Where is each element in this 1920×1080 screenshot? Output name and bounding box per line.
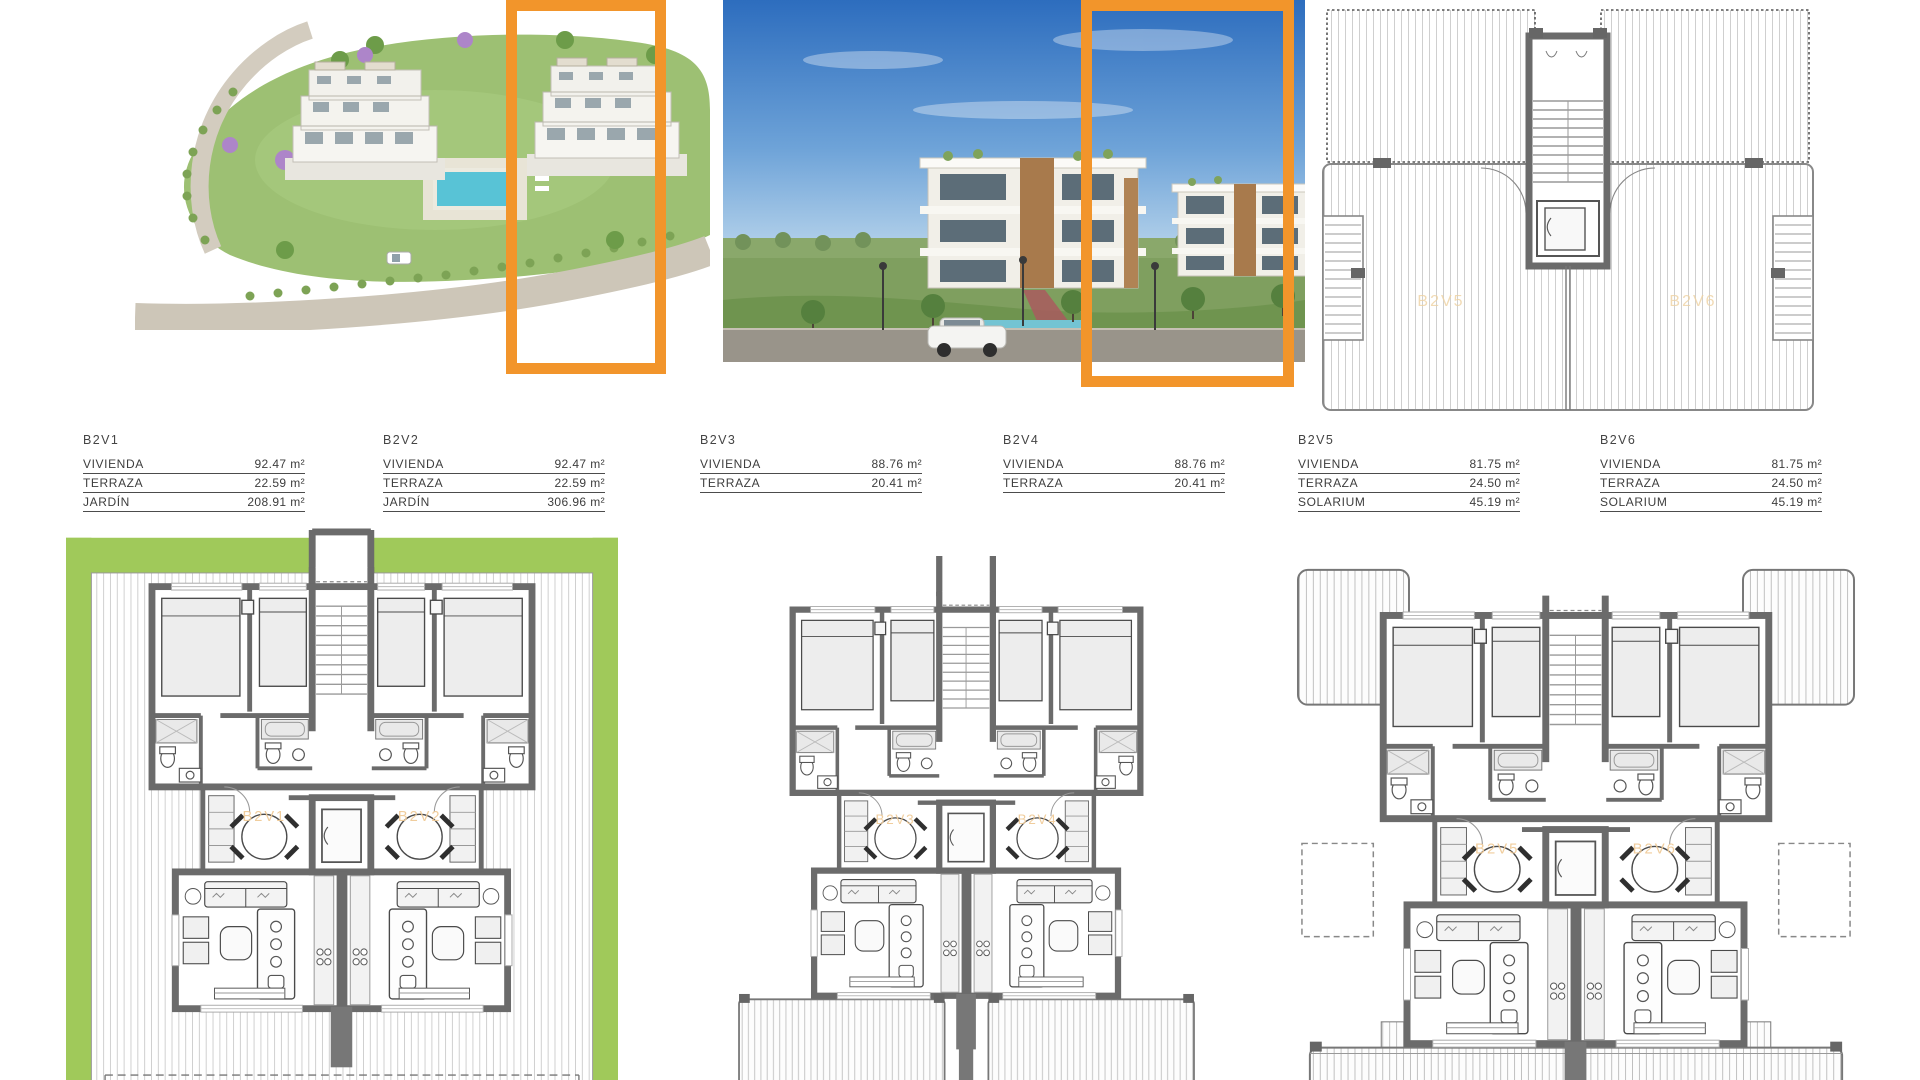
side-stair-right xyxy=(1771,216,1813,340)
car xyxy=(387,252,411,264)
unit-card-b2v2: B2V2 VIVIENDA92.47 m² TERRAZA22.59 m² JA… xyxy=(383,433,605,512)
plan-unit-label-left: B2V3 xyxy=(875,812,915,827)
unit-name: B2V5 xyxy=(1298,433,1520,447)
floor-plan-second: B2V5 B2V6 xyxy=(1296,556,1856,1080)
unit-row: TERRAZA24.50 m² xyxy=(1298,474,1520,493)
plan-unit-label-left: B2V5 xyxy=(1475,841,1519,857)
unit-row: VIVIENDA88.76 m² xyxy=(1003,455,1225,474)
unit-row: VIVIENDA81.75 m² xyxy=(1600,455,1822,474)
unit-name: B2V3 xyxy=(700,433,922,447)
brochure-page: BLOQUE 2 xyxy=(0,0,1920,1080)
unit-row: TERRAZA20.41 m² xyxy=(1003,474,1225,493)
unit-row: TERRAZA22.59 m² xyxy=(383,474,605,493)
unit-row: TERRAZA20.41 m² xyxy=(700,474,922,493)
unit-row: JARDÍN208.91 m² xyxy=(83,493,305,512)
unit-card-b2v3: B2V3 VIVIENDA88.76 m² TERRAZA20.41 m² xyxy=(700,433,922,493)
unit-row: SOLARIUM45.19 m² xyxy=(1600,493,1822,512)
pergola-left xyxy=(1327,10,1535,162)
unit-row: VIVIENDA88.76 m² xyxy=(700,455,922,474)
side-stair-left xyxy=(1323,216,1365,340)
unit-row: TERRAZA22.59 m² xyxy=(83,474,305,493)
floor-plan-first: B2V3 B2V4 xyxy=(714,556,1219,1080)
unit-name: B2V4 xyxy=(1003,433,1225,447)
roof-label-right: B2V6 xyxy=(1669,293,1716,310)
building-left xyxy=(285,62,445,180)
unit-card-b2v1: B2V1 VIVIENDA92.47 m² TERRAZA22.59 m² JA… xyxy=(83,433,305,512)
floor-plan-ground: B2V1 B2V2 xyxy=(66,528,618,1080)
roof-plan: B2V5 B2V6 xyxy=(1321,6,1815,413)
unit-row: JARDÍN306.96 m² xyxy=(383,493,605,512)
plan-unit-label-right: B2V6 xyxy=(1633,841,1677,857)
unit-card-b2v4: B2V4 VIVIENDA88.76 m² TERRAZA20.41 m² xyxy=(1003,433,1225,493)
roof-label-left: B2V5 xyxy=(1417,293,1464,310)
plan-unit-label-right: B2V4 xyxy=(1018,812,1058,827)
unit-row: VIVIENDA81.75 m² xyxy=(1298,455,1520,474)
unit-name: B2V2 xyxy=(383,433,605,447)
unit-name: B2V1 xyxy=(83,433,305,447)
aerial-highlight-box xyxy=(506,0,666,374)
street-highlight-box xyxy=(1081,0,1294,387)
unit-row: VIVIENDA92.47 m² xyxy=(383,455,605,474)
unit-row: SOLARIUM45.19 m² xyxy=(1298,493,1520,512)
pergola-right xyxy=(1601,10,1809,162)
unit-name: B2V6 xyxy=(1600,433,1822,447)
plan-unit-label-right: B2V2 xyxy=(398,809,442,825)
unit-row: TERRAZA24.50 m² xyxy=(1600,474,1822,493)
plan-unit-label-left: B2V1 xyxy=(243,809,287,825)
stair-core xyxy=(1529,36,1607,266)
unit-card-b2v5: B2V5 VIVIENDA81.75 m² TERRAZA24.50 m² SO… xyxy=(1298,433,1520,512)
unit-card-b2v6: B2V6 VIVIENDA81.75 m² TERRAZA24.50 m² SO… xyxy=(1600,433,1822,512)
unit-row: VIVIENDA92.47 m² xyxy=(83,455,305,474)
